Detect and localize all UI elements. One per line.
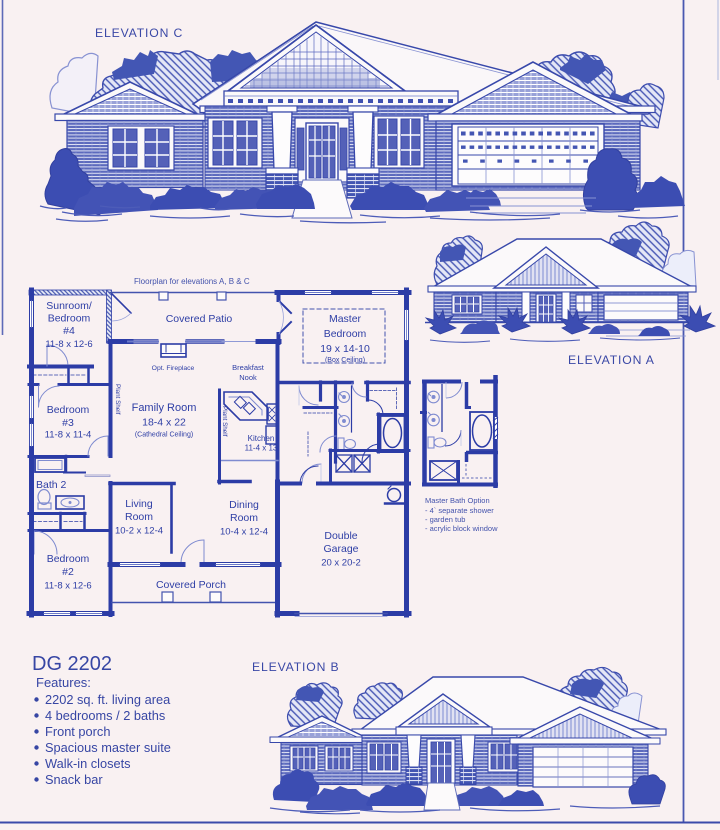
svg-text:11-8 x 12-6: 11-8 x 12-6 [45, 339, 92, 350]
svg-text:10-2 x 12-4: 10-2 x 12-4 [115, 526, 163, 537]
svg-text:Bedroom: Bedroom [324, 328, 367, 340]
svg-text:Double: Double [324, 530, 357, 542]
svg-text:Sunroom/: Sunroom/ [46, 300, 92, 312]
svg-text:Opt. Fireplace: Opt. Fireplace [152, 365, 195, 372]
svg-text:Family Room: Family Room [132, 402, 197, 414]
svg-text:Snack bar: Snack bar [45, 772, 103, 787]
svg-text:Dining: Dining [229, 499, 259, 511]
svg-text:19 x 14-10: 19 x 14-10 [320, 343, 370, 355]
svg-text:2202 sq. ft. living area: 2202 sq. ft. living area [45, 692, 171, 707]
svg-text:(Box Ceiling): (Box Ceiling) [325, 357, 365, 364]
svg-text:- garden tub: - garden tub [425, 515, 465, 524]
svg-text:DG 2202: DG 2202 [32, 653, 112, 675]
svg-text:Nook: Nook [239, 373, 257, 382]
svg-text:Bath 2: Bath 2 [36, 479, 67, 491]
svg-text:11-8 x 12-6: 11-8 x 12-6 [44, 581, 91, 592]
svg-text:Plant Shelf: Plant Shelf [114, 384, 121, 415]
svg-text:Front porch: Front porch [45, 724, 110, 739]
svg-text:Master Bath Option: Master Bath Option [425, 496, 490, 505]
svg-text:ELEVATION B: ELEVATION B [252, 660, 339, 674]
svg-text:Floorplan for elevations A, B: Floorplan for elevations A, B & C [134, 277, 250, 286]
svg-text:Breakfast: Breakfast [232, 363, 265, 372]
svg-text:#3: #3 [62, 417, 74, 429]
svg-text:Garage: Garage [323, 543, 358, 555]
svg-text:Master: Master [329, 313, 362, 325]
svg-text:Spacious master suite: Spacious master suite [45, 740, 171, 755]
svg-text:11-8 x 11-4: 11-8 x 11-4 [45, 430, 92, 441]
svg-text:Features:: Features: [36, 675, 91, 690]
svg-text:18-4 x 22: 18-4 x 22 [142, 417, 186, 429]
svg-text:11-4 x 13: 11-4 x 13 [245, 444, 278, 453]
svg-text:Kitchen: Kitchen [248, 434, 275, 443]
svg-text:#2: #2 [62, 566, 74, 578]
svg-text:Plant Shelf: Plant Shelf [221, 406, 228, 437]
svg-text:(Cathedral Ceiling): (Cathedral Ceiling) [135, 432, 193, 439]
svg-text:20 x 20-2: 20 x 20-2 [321, 558, 361, 569]
svg-text:Covered Patio: Covered Patio [166, 313, 233, 325]
svg-text:Covered Porch: Covered Porch [156, 579, 226, 591]
svg-text:Bedroom: Bedroom [48, 313, 91, 325]
svg-text:Bedroom: Bedroom [47, 404, 90, 416]
svg-text:Bedroom: Bedroom [47, 553, 90, 565]
svg-text:#4: #4 [63, 325, 75, 337]
svg-text:ELEVATION A: ELEVATION A [568, 353, 655, 367]
svg-text:4 bedrooms / 2 baths: 4 bedrooms / 2 baths [45, 708, 165, 723]
svg-text:- acrylic block window: - acrylic block window [425, 524, 498, 533]
svg-text:Room: Room [230, 512, 258, 524]
svg-text:10-4 x 12-4: 10-4 x 12-4 [220, 527, 268, 538]
svg-text:Walk-in closets: Walk-in closets [45, 756, 131, 771]
svg-text:ELEVATION C: ELEVATION C [95, 26, 183, 40]
svg-text:- 4` separate shower: - 4` separate shower [425, 506, 494, 515]
svg-text:Living: Living [125, 498, 153, 510]
svg-text:Room: Room [125, 511, 153, 523]
